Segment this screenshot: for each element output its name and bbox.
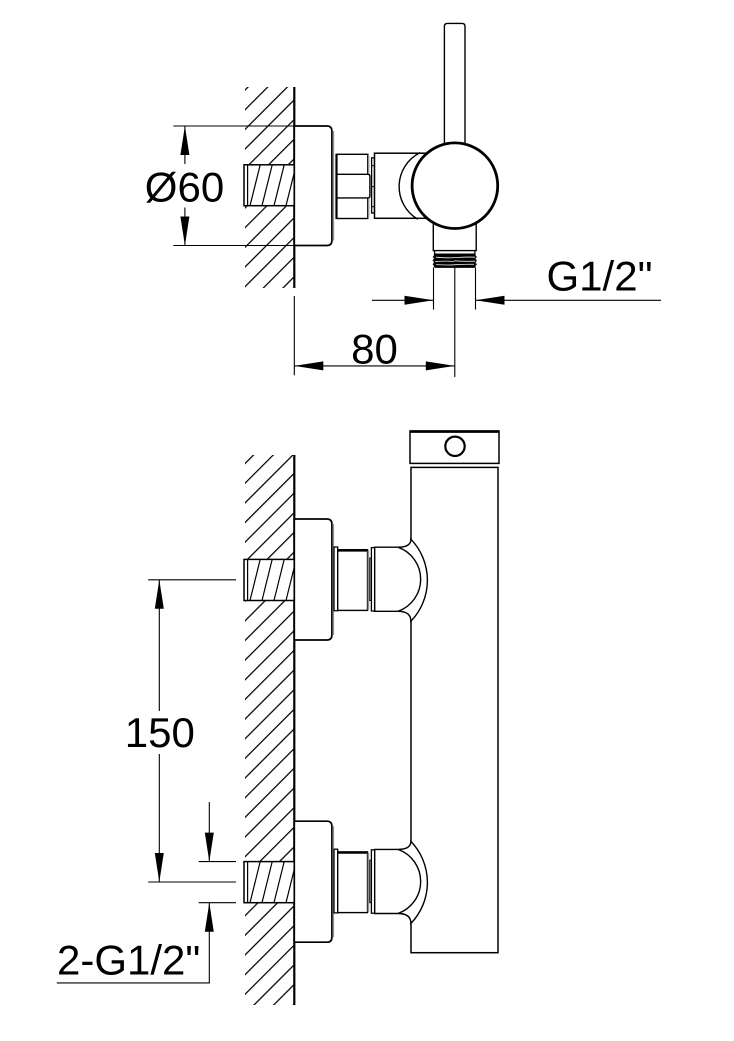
svg-text:G1/2": G1/2" [547,253,653,300]
svg-text:80: 80 [351,325,398,372]
svg-text:150: 150 [125,709,195,756]
svg-text:Ø60: Ø60 [145,164,224,211]
svg-text:2-G1/2": 2-G1/2" [57,937,200,984]
